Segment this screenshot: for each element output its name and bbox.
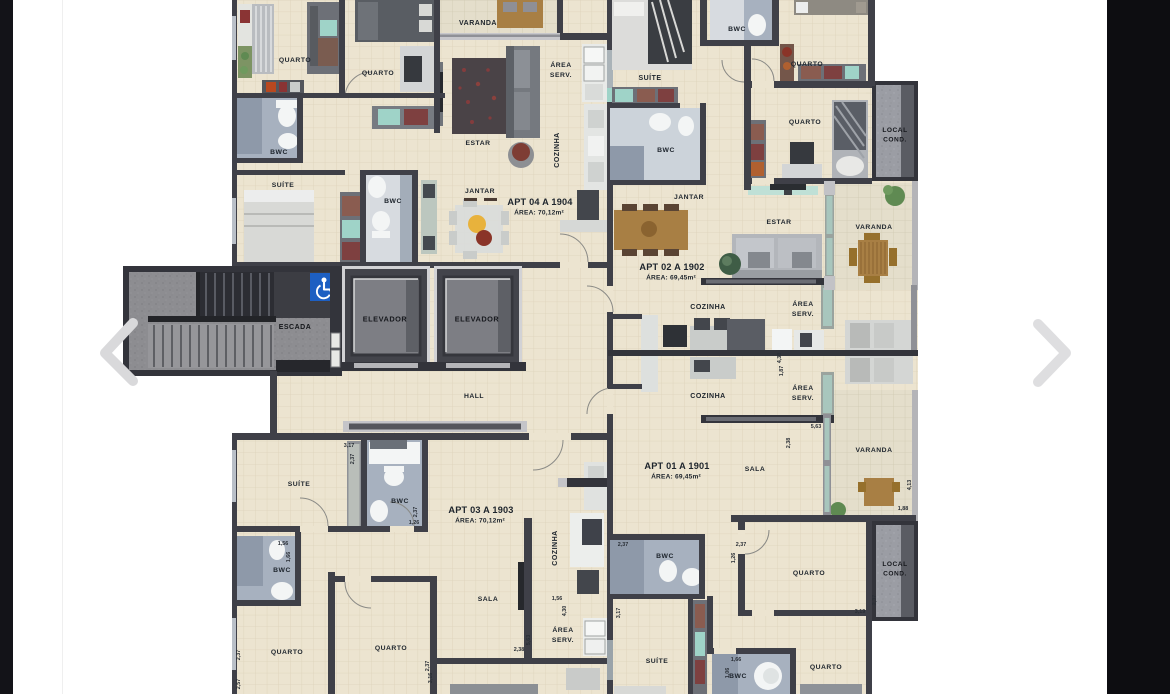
svg-text:2,37: 2,37 bbox=[425, 661, 431, 672]
svg-text:SERV.: SERV. bbox=[552, 637, 574, 644]
svg-text:QUARTO: QUARTO bbox=[789, 119, 821, 126]
svg-text:ESTAR: ESTAR bbox=[465, 140, 490, 147]
svg-text:BWC: BWC bbox=[728, 26, 746, 33]
svg-text:BWC: BWC bbox=[729, 673, 747, 680]
svg-text:2,57: 2,57 bbox=[236, 679, 242, 690]
svg-text:SUÍTE: SUÍTE bbox=[288, 479, 311, 488]
svg-text:1,66: 1,66 bbox=[286, 552, 292, 563]
svg-text:ÁREA: ÁREA bbox=[552, 625, 573, 634]
svg-text:1,66: 1,66 bbox=[731, 657, 742, 663]
svg-text:APT 01 A 1901: APT 01 A 1901 bbox=[644, 461, 709, 471]
svg-text:QUARTO: QUARTO bbox=[362, 70, 394, 77]
svg-text:2,37: 2,37 bbox=[413, 507, 419, 518]
svg-text:ÁREA: 70,12m²: ÁREA: 70,12m² bbox=[514, 208, 564, 217]
svg-text:VARANDA: VARANDA bbox=[856, 224, 893, 231]
svg-text:2,37: 2,37 bbox=[618, 542, 629, 548]
svg-text:SUÍTE: SUÍTE bbox=[638, 73, 661, 82]
svg-text:COND.: COND. bbox=[883, 571, 907, 578]
svg-text:BWC: BWC bbox=[270, 149, 288, 156]
svg-text:3,19: 3,19 bbox=[855, 609, 866, 615]
svg-text:APT 03 A 1903: APT 03 A 1903 bbox=[448, 505, 513, 515]
svg-text:5,63: 5,63 bbox=[811, 424, 822, 430]
svg-text:QUARTO: QUARTO bbox=[793, 570, 825, 577]
svg-text:ÁREA: ÁREA bbox=[550, 60, 571, 69]
svg-text:COZINHA: COZINHA bbox=[690, 304, 725, 311]
svg-text:4,30: 4,30 bbox=[562, 606, 568, 617]
svg-text:COZINHA: COZINHA bbox=[554, 132, 561, 167]
svg-text:1,06: 1,06 bbox=[725, 668, 731, 679]
svg-text:1,87: 1,87 bbox=[779, 366, 785, 377]
svg-text:SERV.: SERV. bbox=[792, 311, 814, 318]
svg-text:JANTAR: JANTAR bbox=[674, 194, 704, 201]
svg-text:APT 02 A 1902: APT 02 A 1902 bbox=[639, 262, 704, 272]
svg-text:ÁREA: ÁREA bbox=[792, 299, 813, 308]
svg-text:2,37: 2,37 bbox=[236, 650, 242, 661]
svg-text:1,26: 1,26 bbox=[731, 553, 737, 564]
svg-text:QUARTO: QUARTO bbox=[271, 649, 303, 656]
svg-text:COND.: COND. bbox=[883, 137, 907, 144]
svg-text:ESCADA: ESCADA bbox=[279, 324, 312, 331]
svg-text:SERV.: SERV. bbox=[792, 395, 814, 402]
svg-text:ELEVADOR: ELEVADOR bbox=[455, 315, 500, 324]
svg-text:ESTAR: ESTAR bbox=[766, 219, 791, 226]
svg-text:APT 04 A 1904: APT 04 A 1904 bbox=[507, 197, 573, 207]
svg-text:1,88: 1,88 bbox=[898, 506, 909, 512]
svg-text:SUÍTE: SUÍTE bbox=[646, 656, 669, 665]
svg-text:1,56: 1,56 bbox=[552, 596, 563, 602]
svg-text:COZINHA: COZINHA bbox=[552, 530, 559, 565]
svg-text:4,30: 4,30 bbox=[777, 353, 783, 364]
svg-text:HALL: HALL bbox=[464, 393, 484, 400]
svg-text:SALA: SALA bbox=[745, 466, 766, 473]
svg-text:SERV.: SERV. bbox=[550, 72, 572, 79]
svg-text:2,38: 2,38 bbox=[514, 647, 525, 653]
svg-text:ELEVADOR: ELEVADOR bbox=[363, 315, 408, 324]
svg-text:4,13: 4,13 bbox=[907, 480, 913, 491]
svg-text:3,17: 3,17 bbox=[616, 608, 622, 619]
svg-text:1,26: 1,26 bbox=[409, 520, 420, 526]
svg-text:ÁREA: ÁREA bbox=[792, 383, 813, 392]
svg-text:BWC: BWC bbox=[657, 147, 675, 154]
svg-text:2,37: 2,37 bbox=[872, 595, 878, 606]
svg-text:2,37: 2,37 bbox=[736, 542, 747, 548]
svg-text:3,17: 3,17 bbox=[344, 443, 355, 449]
svg-text:5,63: 5,63 bbox=[526, 635, 532, 646]
svg-text:BWC: BWC bbox=[391, 498, 409, 505]
svg-text:QUARTO: QUARTO bbox=[375, 645, 407, 652]
svg-text:COZINHA: COZINHA bbox=[690, 393, 725, 400]
svg-text:2,38: 2,38 bbox=[786, 438, 792, 449]
svg-text:LOCAL: LOCAL bbox=[882, 127, 907, 134]
svg-text:BWC: BWC bbox=[384, 198, 402, 205]
svg-text:3,16: 3,16 bbox=[428, 673, 434, 684]
svg-text:QUARTO: QUARTO bbox=[791, 61, 823, 68]
svg-text:VARANDA: VARANDA bbox=[856, 447, 893, 454]
svg-text:2,37: 2,37 bbox=[350, 454, 356, 465]
svg-text:ÁREA: 69,45m²: ÁREA: 69,45m² bbox=[646, 273, 696, 282]
svg-text:JANTAR: JANTAR bbox=[465, 188, 495, 195]
svg-text:QUARTO: QUARTO bbox=[810, 664, 842, 671]
svg-text:ÁREA: 70,12m²: ÁREA: 70,12m² bbox=[455, 516, 505, 525]
svg-text:VARANDA: VARANDA bbox=[459, 20, 497, 27]
svg-text:QUARTO: QUARTO bbox=[279, 57, 311, 64]
svg-text:ÁREA: 69,45m²: ÁREA: 69,45m² bbox=[651, 472, 701, 481]
svg-text:1,56: 1,56 bbox=[278, 541, 289, 547]
svg-text:SUÍTE: SUÍTE bbox=[272, 180, 295, 189]
svg-text:BWC: BWC bbox=[273, 567, 291, 574]
svg-text:LOCAL: LOCAL bbox=[882, 561, 907, 568]
svg-text:BWC: BWC bbox=[656, 553, 674, 560]
svg-text:SALA: SALA bbox=[478, 596, 499, 603]
